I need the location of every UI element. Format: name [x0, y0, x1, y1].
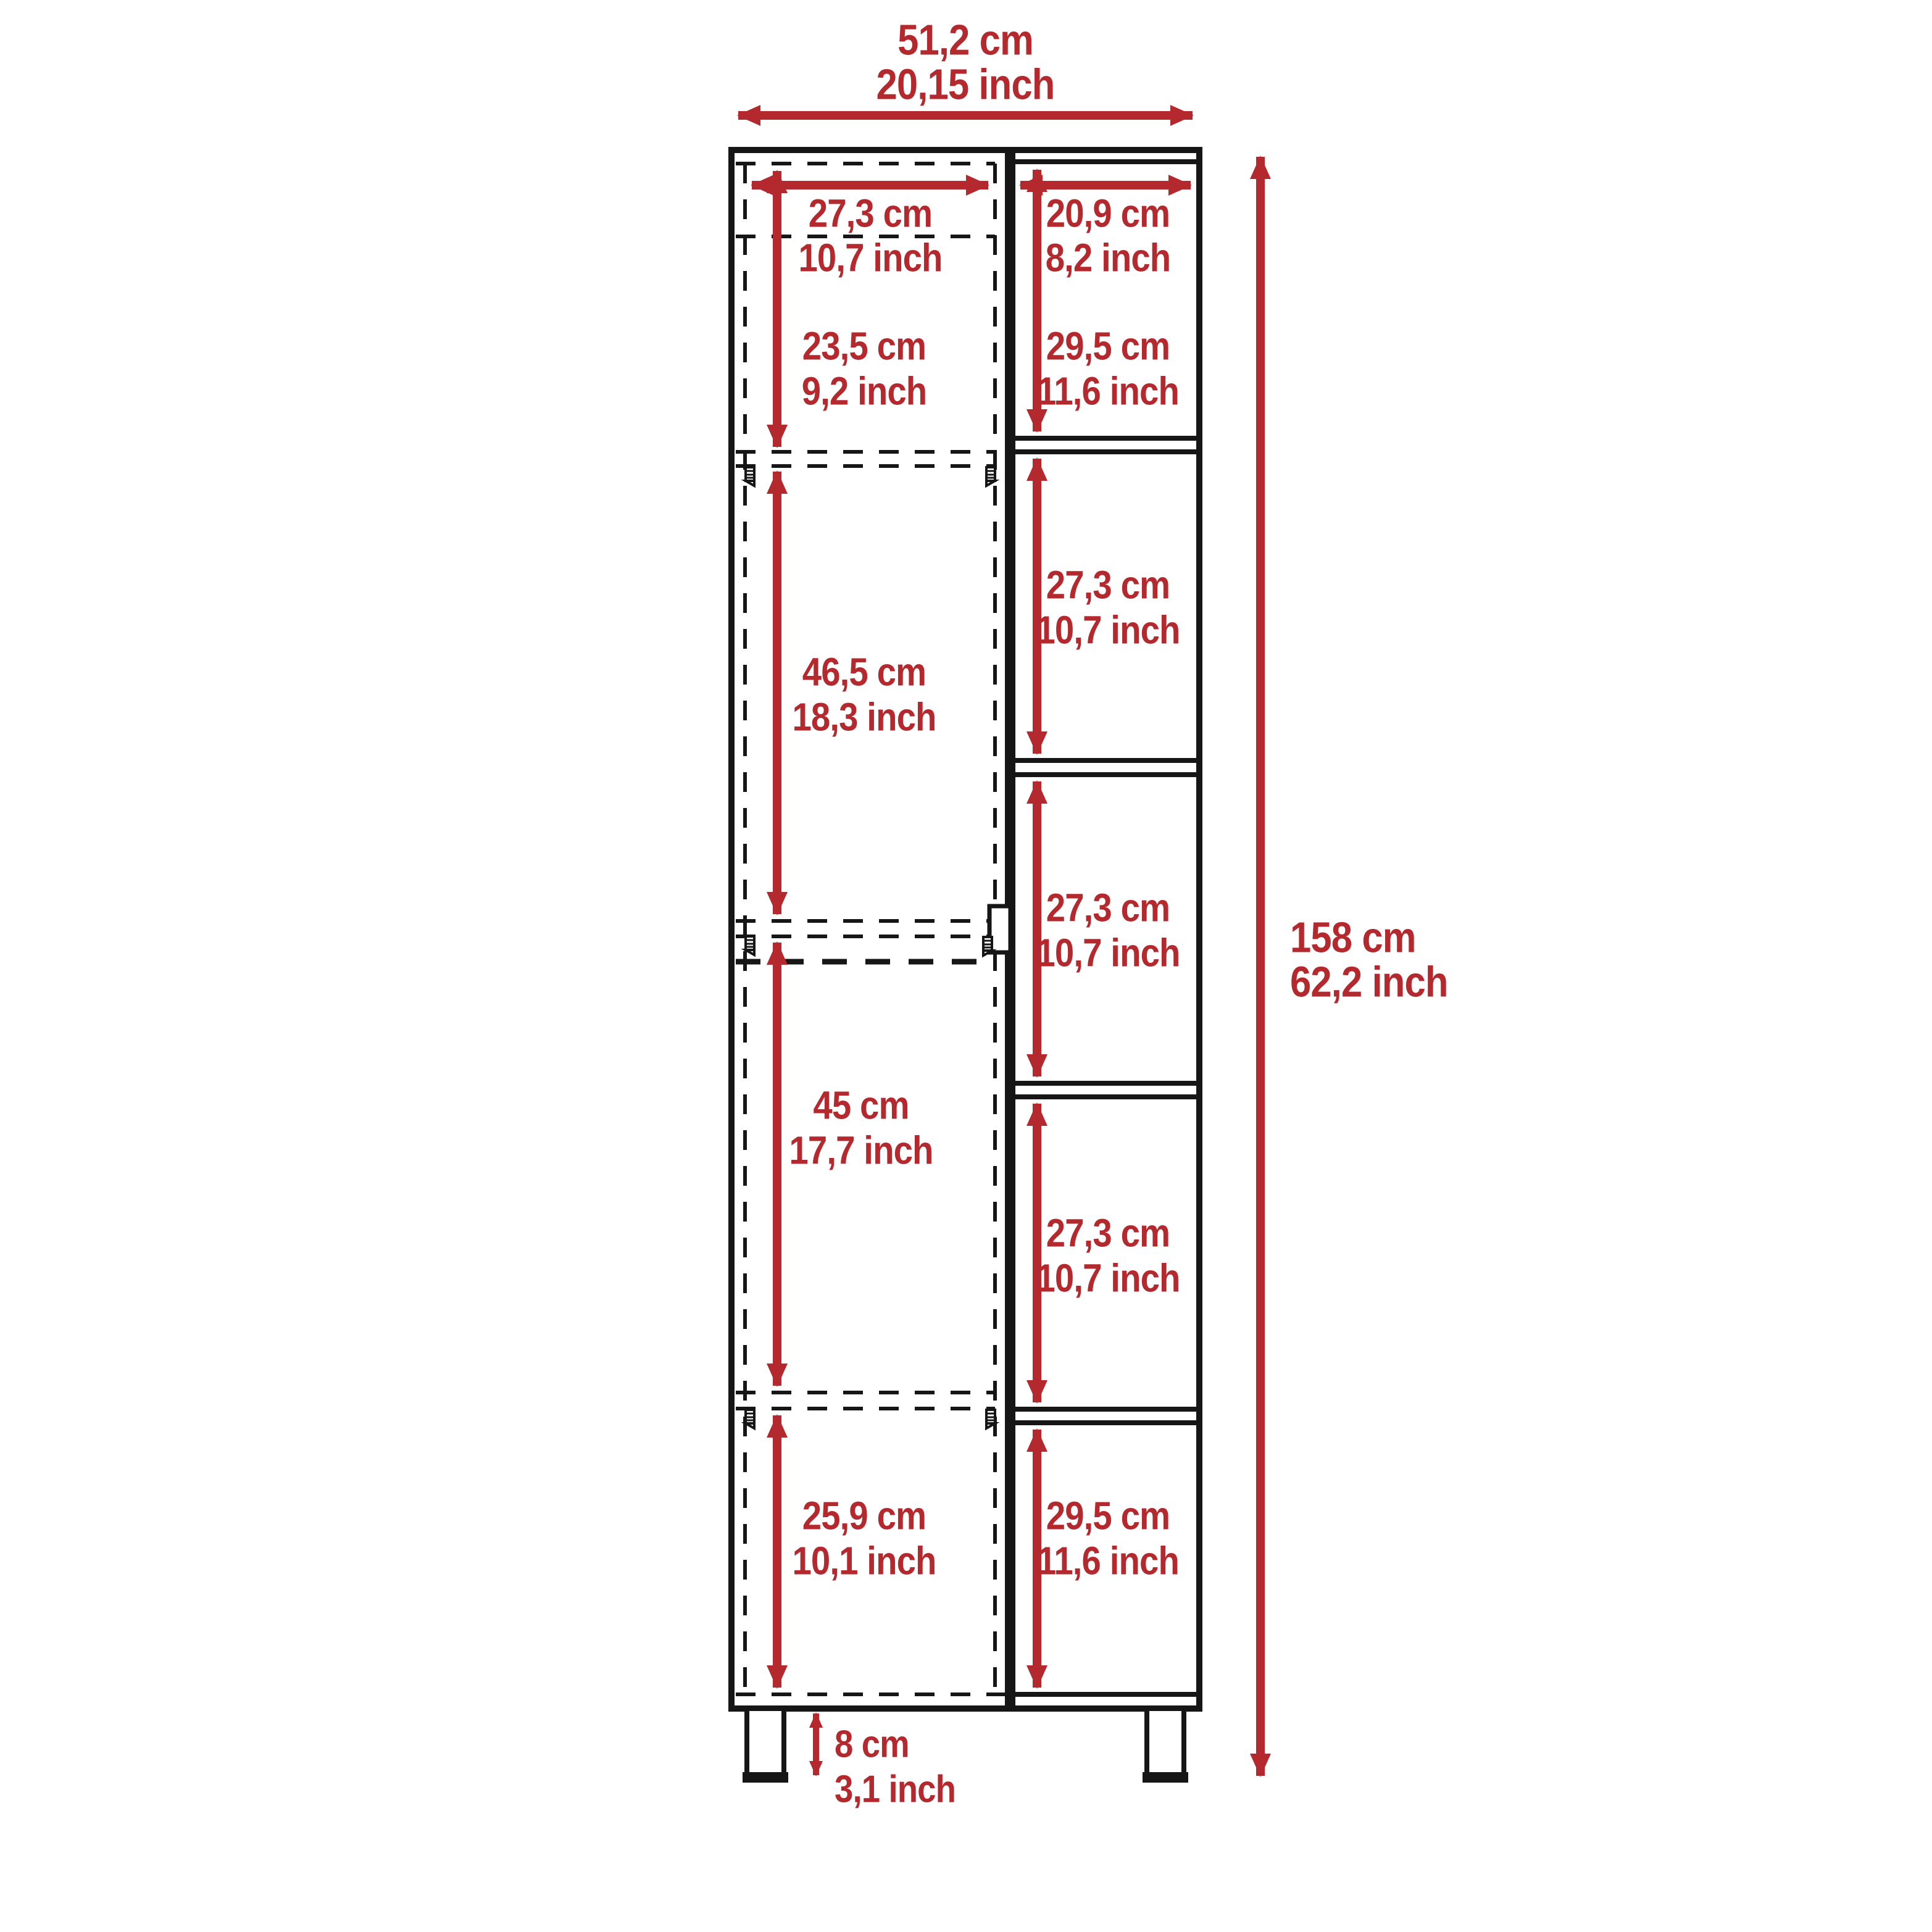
hinge-icon-right-top — [986, 467, 995, 486]
label-overall-width-inch: 20,15 inch — [876, 60, 1054, 109]
label-shelf-section-1-cm: 29,5 cm — [1046, 323, 1170, 368]
hinge-icon-left-bottom — [746, 1410, 754, 1428]
label-door-section-4-inch: 10,1 inch — [792, 1538, 936, 1583]
leg-right — [1147, 1709, 1184, 1775]
door-handle-clip-icon — [983, 937, 992, 956]
label-shelf-width-cm: 20,9 cm — [1046, 191, 1170, 235]
label-door-section-3-inch: 17,7 inch — [789, 1128, 933, 1172]
label-shelf-width-inch: 8,2 inch — [1046, 235, 1171, 280]
cabinet-legs — [743, 1709, 1188, 1783]
label-shelf-section-2-inch: 10,7 inch — [1036, 607, 1180, 652]
door-handle — [983, 906, 1010, 956]
hinge-icon-left-middle — [746, 936, 754, 955]
label-shelf-section-5-cm: 29,5 cm — [1046, 1493, 1170, 1538]
dimension-labels: 51,2 cm 20,15 inch 158 cm 62,2 inch 27,3… — [789, 15, 1447, 1811]
label-legs-height-cm: 8 cm — [835, 1723, 909, 1765]
leg-left-foot — [743, 1772, 788, 1783]
label-legs-height-inch: 3,1 inch — [835, 1768, 956, 1810]
label-shelf-section-5-inch: 11,6 inch — [1037, 1538, 1179, 1583]
label-shelf-section-2-cm: 27,3 cm — [1046, 562, 1170, 607]
label-door-width-inch: 10,7 inch — [798, 235, 942, 280]
furniture-dimension-diagram: 51,2 cm 20,15 inch 158 cm 62,2 inch 27,3… — [0, 0, 1932, 1932]
label-shelf-section-3-inch: 10,7 inch — [1036, 930, 1180, 975]
label-door-section-4-cm: 25,9 cm — [802, 1493, 926, 1538]
label-shelf-section-4-inch: 10,7 inch — [1036, 1255, 1180, 1300]
label-door-section-1-inch: 9,2 inch — [802, 368, 927, 413]
label-door-width-cm: 27,3 cm — [809, 191, 932, 235]
label-door-section-2-cm: 46,5 cm — [802, 649, 926, 694]
label-shelf-section-1-inch: 11,6 inch — [1037, 368, 1179, 413]
label-overall-height-cm: 158 cm — [1290, 913, 1416, 962]
label-overall-width-cm: 51,2 cm — [897, 15, 1033, 64]
cabinet-spec-drawing: 51,2 cm 20,15 inch 158 cm 62,2 inch 27,3… — [0, 0, 1932, 1932]
label-overall-height-inch: 62,2 inch — [1290, 957, 1448, 1006]
hinge-icon-left-top — [746, 467, 754, 486]
hinge-icon-right-bottom — [986, 1410, 995, 1428]
label-shelf-section-4-cm: 27,3 cm — [1046, 1210, 1170, 1255]
label-door-section-2-inch: 18,3 inch — [792, 694, 936, 739]
leg-left — [747, 1709, 784, 1775]
label-shelf-section-3-cm: 27,3 cm — [1046, 885, 1170, 930]
label-door-section-1-cm: 23,5 cm — [802, 323, 926, 368]
label-door-section-3-cm: 45 cm — [813, 1083, 909, 1127]
leg-right-foot — [1143, 1772, 1188, 1783]
